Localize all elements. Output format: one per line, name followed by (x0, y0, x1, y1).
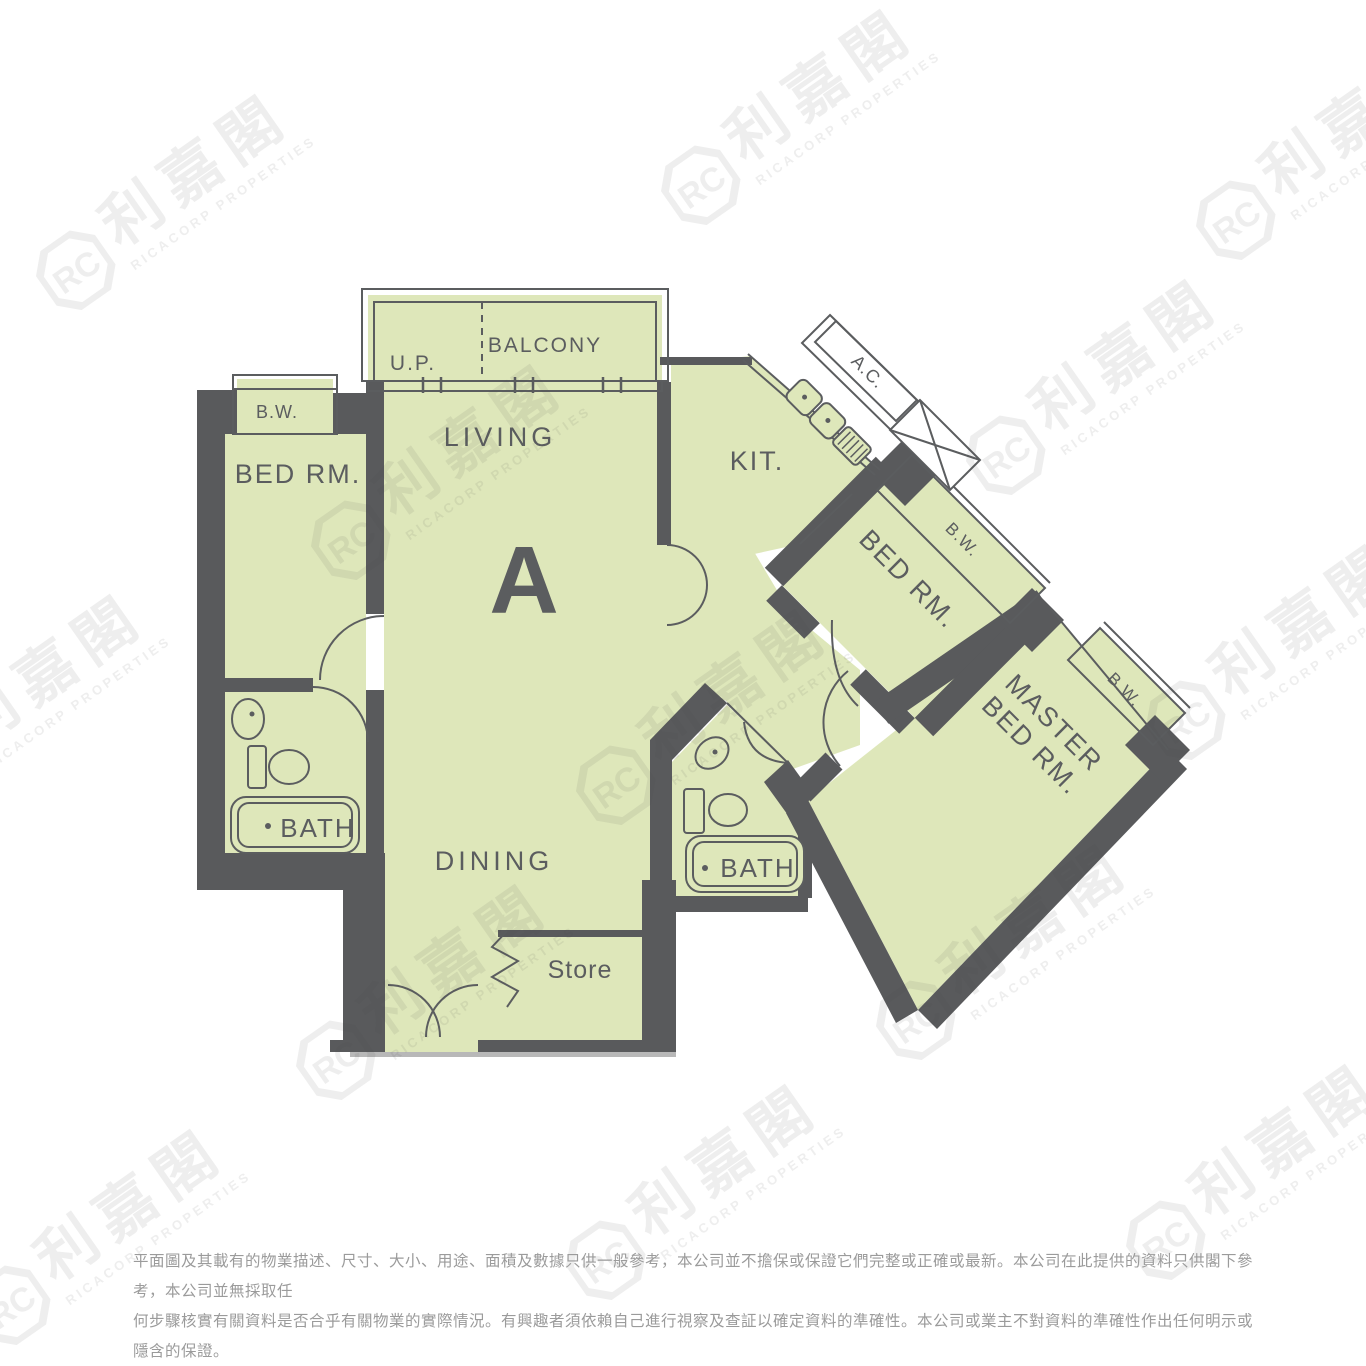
bath-1-toilet-bowl (269, 750, 309, 784)
balcony-label: BALCONY (488, 334, 602, 357)
kitchen-label: KIT. (730, 446, 785, 476)
bath-2-label: BATH (720, 853, 795, 883)
unit-label: A (489, 527, 558, 634)
disclaimer: 平面圖及其載有的物業描述、尺寸、大小、用途、面積及數據只供一般參考，本公司並不擔… (133, 1247, 1253, 1366)
bedroom-1-floor (225, 433, 366, 853)
wall-shadow (350, 1052, 676, 1057)
living-label: LIVING (444, 422, 557, 452)
floorplan-drawing: B.W. BED RM. U.P. BALCONY LIVING A KIT. … (0, 0, 1366, 1366)
bath-2-toilet-tank (684, 789, 704, 833)
store-label: Store (548, 956, 613, 984)
utility-platform-label: U.P. (390, 352, 436, 375)
bath-2-toilet-bowl (709, 794, 747, 826)
dining-label: DINING (435, 846, 554, 876)
bath-1-drain (265, 823, 271, 829)
disclaimer-zh-line-2: 何步驟核實有關資料是否合乎有關物業的實際情況。有興趣者須依賴自己進行視察及查証以… (133, 1307, 1253, 1366)
bath-2-drain (702, 865, 708, 871)
bath-1-sink (232, 699, 264, 739)
floorplan-page: B.W. BED RM. U.P. BALCONY LIVING A KIT. … (0, 0, 1366, 1366)
bath-1-toilet-tank (248, 746, 266, 788)
disclaimer-zh-line-1: 平面圖及其載有的物業描述、尺寸、大小、用途、面積及數據只供一般參考，本公司並不擔… (133, 1247, 1253, 1307)
bay-window-1-label: B.W. (256, 402, 298, 422)
bedroom-1-label: BED RM. (235, 459, 362, 489)
bath-1-label: BATH (280, 813, 355, 843)
entrance-opening (385, 1040, 478, 1052)
